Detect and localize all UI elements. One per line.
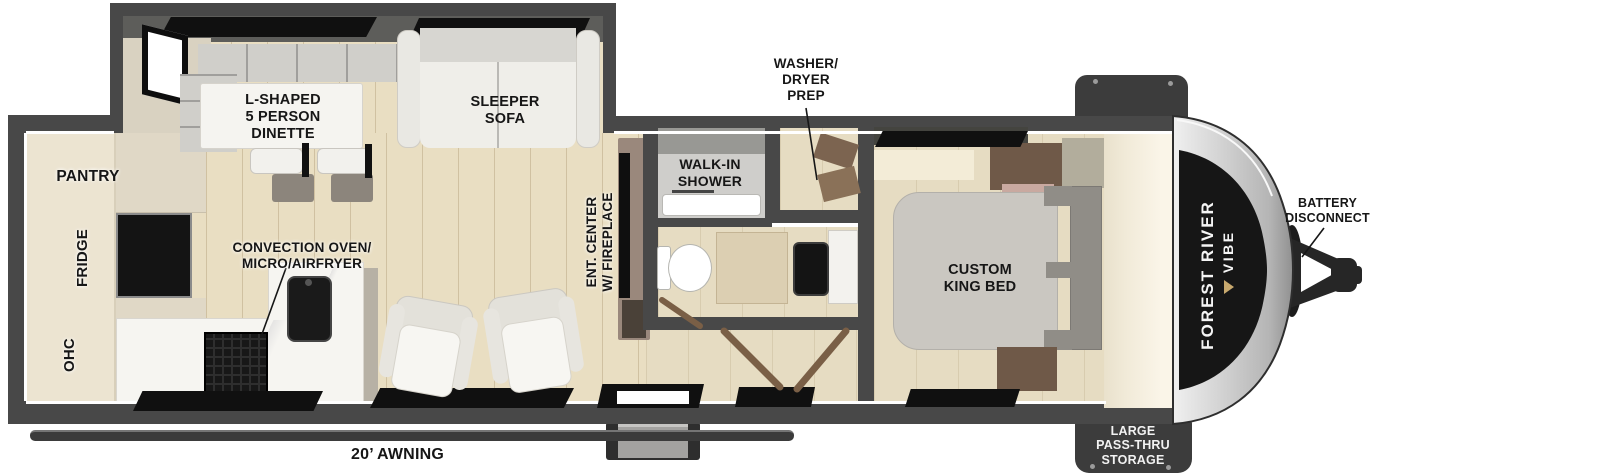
brand-model: VIBE [1220,230,1236,273]
label-pantry: PANTRY [38,168,138,188]
label-battery-disconnect: BATTERY DISCONNECT [1265,196,1390,230]
label-walk-in-shower: WALK-IN SHOWER [650,156,770,192]
label-ent-center: ENT. CENTER W/ FIREPLACE [584,167,620,317]
label-fridge: FRIDGE [74,218,94,298]
label-sleeper-sofa: SLEEPER SOFA [440,94,570,132]
hitch-coupler-tip [1352,266,1362,284]
vibe-logo-chevron [1224,280,1234,294]
bedroom-door-leaf [797,331,846,389]
brand-manufacturer: FOREST RIVER [1198,180,1220,370]
label-convection: CONVECTION OVEN/ MICRO/AIRFRYER [212,240,392,272]
label-pass-thru-storage: LARGE PASS-THRU STORAGE [1077,424,1189,472]
label-dinette: L-SHAPED 5 PERSON DINETTE [208,92,358,148]
rv-floorplan-canvas: L-SHAPED 5 PERSON DINETTE SLEEPER SOFA P… [0,0,1600,475]
label-washer-dryer-prep: WASHER/ DRYER PREP [756,56,856,110]
label-awning: 20’ AWNING [330,446,465,466]
brand-model-line: VIBE [1220,202,1238,322]
washer-dryer-leader-line [806,108,817,180]
label-custom-king-bed: CUSTOM KING BED [915,262,1045,300]
bathroom-door-leaf [662,300,700,326]
label-ohc: OHC [61,325,81,385]
bedroom-door-leaf [724,331,780,387]
convection-leader-line [262,268,286,334]
